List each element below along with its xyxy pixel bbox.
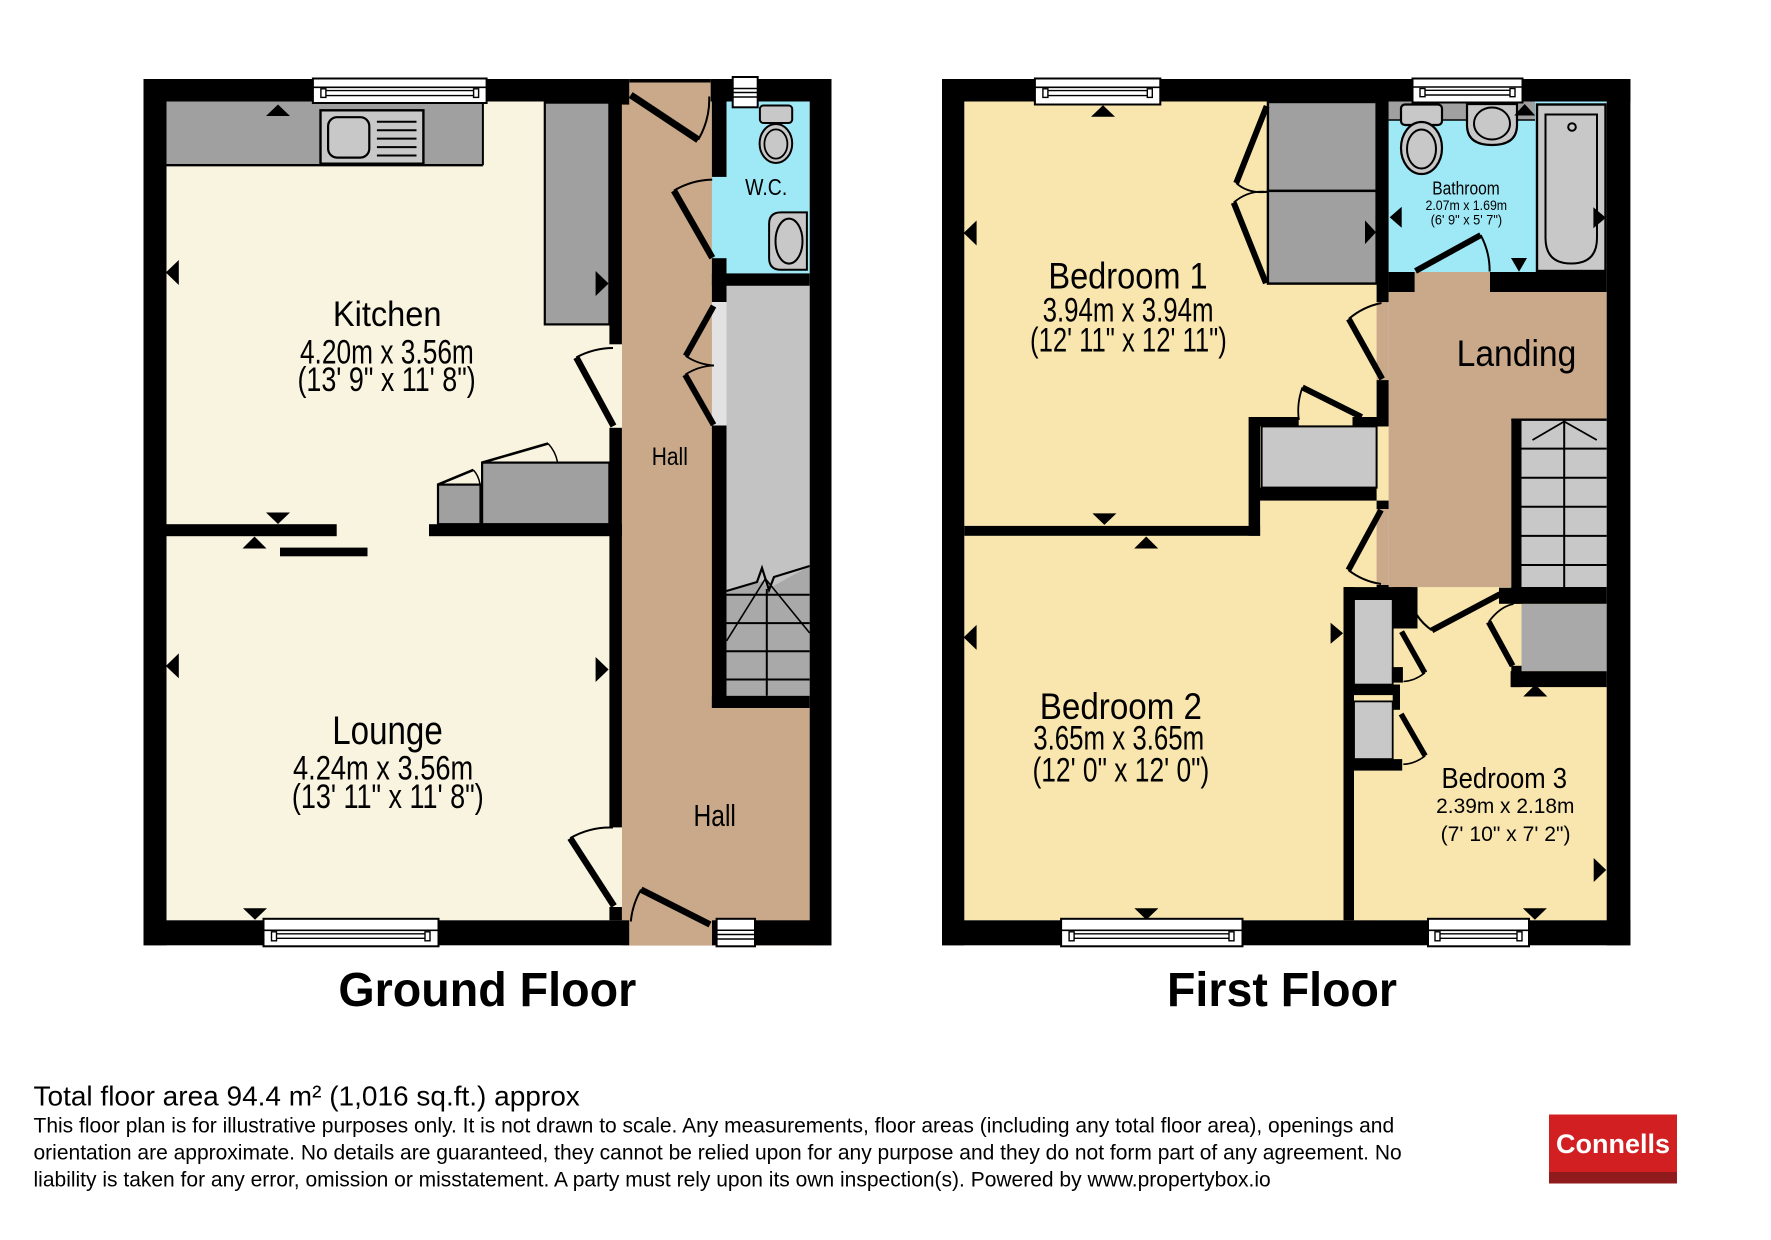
- svg-text:Connells: Connells: [1556, 1129, 1670, 1159]
- svg-text:2.07m x 1.69m: 2.07m x 1.69m: [1426, 198, 1508, 213]
- svg-text:(7' 10" x 7' 2"): (7' 10" x 7' 2"): [1441, 823, 1571, 846]
- svg-text:Total floor area 94.4 m² (1,01: Total floor area 94.4 m² (1,016 sq.ft.) …: [34, 1081, 580, 1112]
- svg-text:Landing: Landing: [1457, 332, 1577, 374]
- svg-text:(13' 11" x 11' 8"): (13' 11" x 11' 8"): [292, 778, 484, 816]
- svg-text:(6' 9" x 5' 7"): (6' 9" x 5' 7"): [1431, 213, 1503, 228]
- svg-text:Lounge: Lounge: [332, 709, 443, 753]
- svg-text:Hall: Hall: [694, 800, 736, 833]
- svg-text:Ground Floor: Ground Floor: [338, 964, 636, 1017]
- svg-text:First Floor: First Floor: [1167, 964, 1397, 1017]
- svg-text:Bathroom: Bathroom: [1432, 178, 1499, 198]
- svg-text:Bedroom 3: Bedroom 3: [1442, 763, 1568, 795]
- svg-text:W.C.: W.C.: [745, 174, 787, 200]
- svg-text:Kitchen: Kitchen: [333, 294, 442, 334]
- svg-text:Bedroom 1: Bedroom 1: [1048, 255, 1207, 296]
- svg-text:liability is taken for any err: liability is taken for any error, omissi…: [34, 1169, 1271, 1192]
- svg-text:2.39m x 2.18m: 2.39m x 2.18m: [1436, 795, 1574, 818]
- svg-text:orientation are approximate. N: orientation are approximate. No details …: [34, 1142, 1402, 1165]
- svg-text:(13' 9" x 11' 8"): (13' 9" x 11' 8"): [297, 361, 475, 399]
- svg-text:(12' 11" x 12' 11"): (12' 11" x 12' 11"): [1030, 322, 1227, 360]
- svg-text:(12' 0" x 12' 0"): (12' 0" x 12' 0"): [1032, 751, 1209, 789]
- svg-text:Hall: Hall: [652, 444, 688, 471]
- svg-text:This floor plan is for illustr: This floor plan is for illustrative purp…: [34, 1115, 1395, 1138]
